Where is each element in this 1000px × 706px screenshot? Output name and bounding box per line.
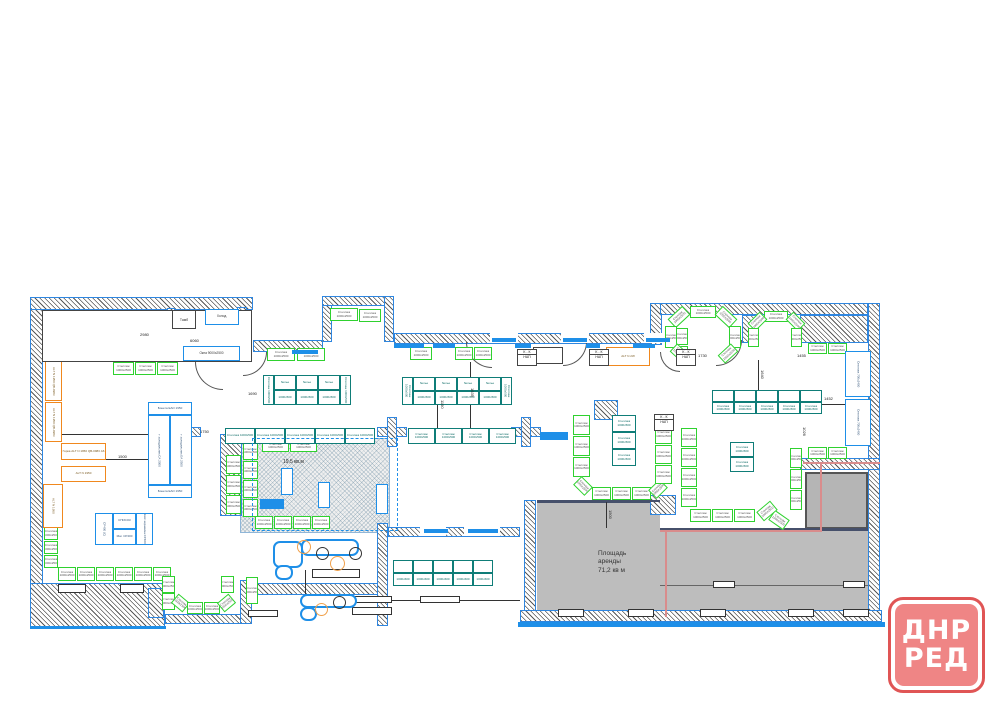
threshold xyxy=(628,609,654,617)
fixture-o: ALT N 1950 xyxy=(61,466,106,482)
threshold xyxy=(788,609,814,617)
fixture-t xyxy=(756,390,778,402)
fixture-t: 1000х500 xyxy=(457,391,479,405)
door-sill xyxy=(424,529,448,533)
door-sill xyxy=(292,350,318,354)
fixture-g: Стеллаж 1000х2500 xyxy=(157,362,178,375)
threshold xyxy=(843,581,865,588)
door-sill xyxy=(515,344,531,348)
fixture-g: Стеллаж 1000х2500 xyxy=(135,362,156,375)
fixture-g: Стеллаж 1000х2500 xyxy=(790,469,802,489)
fixture-o: Горка ALT N 1950 QB-0983 А6 xyxy=(61,443,106,460)
dimension-label: 1635 xyxy=(470,388,474,397)
fixture-t: 1000х600 xyxy=(393,573,413,586)
fixture-g: Стеллаж 1000х2500 xyxy=(96,567,114,581)
door-sill xyxy=(646,338,670,342)
fixture-g: Стеллаж 1000х2500 xyxy=(748,328,759,347)
fixture-t: Стеллаж 1000х500 xyxy=(462,428,489,444)
fixture-t: 1000х600 xyxy=(453,573,473,586)
fixture-b: Бонета ЕАО 1950 xyxy=(148,402,192,415)
fixture-t xyxy=(800,390,822,402)
fixture-g: Стеллаж 1000х2500 xyxy=(115,567,133,581)
rental-line-1: Площадь xyxy=(598,550,626,558)
fixture-t: Стеллаж 1000х500 xyxy=(263,375,274,405)
fixture-t xyxy=(734,390,756,402)
fixture-b: Евіс керамика СР400 xyxy=(136,513,153,545)
fixture-t: 1000х500 xyxy=(413,391,435,405)
scale-circle xyxy=(316,547,329,560)
fixture-t xyxy=(712,390,734,402)
fixture-g: Стеллаж 1000х2500 xyxy=(330,308,358,321)
threshold xyxy=(713,581,735,588)
blue-box: Холод. xyxy=(205,309,239,325)
page: 19,5 кв.м Площадь аренды 71,2 кв м Стелл… xyxy=(0,0,1000,706)
fixture-g: Стеллаж 1000х2500 xyxy=(681,428,697,447)
red-boundary-line xyxy=(820,463,822,530)
dimension-label: 1640 xyxy=(760,370,764,379)
logo-line-1: ДНР xyxy=(902,617,971,645)
fixture-b: Маг. СР400 xyxy=(113,529,136,545)
axis-marker: К - КНАП xyxy=(517,349,537,366)
plain-box xyxy=(533,347,563,364)
dimension-label: 1730 xyxy=(698,354,707,358)
fixture-g: Стеллаж 1000х2500 xyxy=(573,457,590,477)
fixture-t: белье xyxy=(457,377,479,391)
fixture-t: белье xyxy=(435,377,457,391)
fixture-g: Стеллаж 1000х2500 xyxy=(226,495,241,514)
wall-segment xyxy=(650,495,676,515)
fixture-g: Стеллаж 1000х2500 xyxy=(676,328,688,345)
fixture-g: Стеллаж 1000х2500 xyxy=(113,362,134,375)
fixture-t: 1000х500 xyxy=(435,391,457,405)
fixture-g: Стеллаж 1000х2500 xyxy=(77,567,95,581)
fixture-t: Стеллаж 1000х500 xyxy=(612,449,636,466)
dimension-label: 1190 xyxy=(440,400,444,409)
fixture-g: Стеллаж 1000х2500 xyxy=(808,447,827,459)
door-sill xyxy=(586,344,600,348)
fixture-t: Стеллаж 1000х500 xyxy=(402,377,413,405)
dimension-label: 2980 xyxy=(140,333,149,337)
fixture-g: Стеллаж 1000х2500 xyxy=(573,436,590,456)
wall-segment xyxy=(384,296,394,342)
dimension-label: 1026 xyxy=(802,427,806,436)
drawing-line xyxy=(537,500,660,502)
red-boundary-line xyxy=(803,462,880,464)
fixture-t: Стеллаж 1000х500 xyxy=(730,442,754,457)
fixture-o: ALT N 1950 QB-0983 xyxy=(45,361,62,401)
threshold xyxy=(420,596,460,603)
fixture-t: Стеллаж 1000х500 xyxy=(778,402,800,414)
fixture-g: Стеллаж 1000х2500 xyxy=(790,448,802,468)
threshold xyxy=(352,596,392,603)
rental-line-3: 71,2 кв м xyxy=(598,567,626,575)
fixture-g: Стеллаж 1000х2500 xyxy=(226,475,241,494)
fixture-t: Стеллаж 1000х500 xyxy=(712,402,734,414)
fixture-t: 1000х500 xyxy=(318,390,340,405)
fixture-t: белье xyxy=(318,375,340,390)
fixture-t: Стеллаж 1000х500 xyxy=(408,428,435,444)
blue-box: Окна 9000х2500 xyxy=(183,346,240,361)
fixture-g: Стеллаж 1000х2500 xyxy=(474,347,492,360)
fixture-g: Стеллаж 1000х2500 xyxy=(187,602,203,614)
drawing-line xyxy=(62,434,148,435)
fixture-t: белье xyxy=(479,377,501,391)
wall-segment xyxy=(800,315,868,343)
door-sill xyxy=(468,529,498,533)
logo-line-2: РЕД xyxy=(904,645,969,673)
fixture-g: Стеллаж 1000х2500 xyxy=(573,415,590,435)
threshold xyxy=(248,610,278,617)
door-arc xyxy=(195,362,223,390)
logo-inner-plate: ДНР РЕД xyxy=(895,604,978,686)
door-arc xyxy=(563,342,587,366)
door-sill xyxy=(633,344,655,348)
fixture-g: Стеллаж 1000х2500 xyxy=(359,309,381,322)
plain-box: Тамб xyxy=(172,310,196,329)
fixture-b: Стеллаж 700х2400 xyxy=(845,351,871,397)
fixture-b: Стеллаж 700х2400 xyxy=(845,399,871,446)
fixture-t: 1000х500 xyxy=(479,391,501,405)
fixture-t: Стеллаж 1000х500 xyxy=(612,415,636,432)
wall-segment xyxy=(524,500,536,612)
fixture-g: Стеллаж 1000х2500 xyxy=(246,577,258,604)
rental-area xyxy=(660,530,868,617)
fixture-t: 1000х500 xyxy=(296,390,318,405)
fixture-t: белье xyxy=(296,375,318,390)
fixture-t: белье xyxy=(413,377,435,391)
fixture-b: СР400 (С) xyxy=(95,513,113,545)
fixture-t: Стеллаж 1000х500 xyxy=(435,428,462,444)
threshold xyxy=(700,609,726,617)
fixture-g: Стеллаж 1000х2500 xyxy=(410,347,432,360)
fixture-o: ALT N 1950 QB-0983 xyxy=(45,402,62,442)
rental-area-box xyxy=(805,472,868,529)
fixture-g: Стеллаж 1000х2500 xyxy=(162,576,175,593)
dimension-label: 1455 xyxy=(797,354,806,358)
fixture-g: Стеллаж 1000х2500 xyxy=(44,541,58,554)
dimension-label: 1750 xyxy=(200,430,209,434)
dimension-label: 6060 xyxy=(190,339,199,343)
fixture-o: ALT N 1950 xyxy=(43,484,63,528)
rental-line-2: аренды xyxy=(598,558,626,566)
red-boundary-line xyxy=(660,530,822,532)
chair-circle xyxy=(315,603,328,616)
wall-segment xyxy=(30,583,165,628)
fixture-bs xyxy=(540,432,568,440)
door-sill xyxy=(30,626,166,629)
drawing-line xyxy=(660,585,868,586)
wall-segment xyxy=(388,527,520,537)
fixture-g: Стеллаж 1000х2500 xyxy=(226,455,241,474)
axis-marker-bottom: НАП xyxy=(590,354,608,359)
fixture-g: Стеллаж 1000х2500 xyxy=(58,567,76,581)
fixture-t: Стеллаж 1000х500 xyxy=(800,402,822,414)
fixture-t xyxy=(433,560,453,573)
rental-area-label: Площадь аренды 71,2 кв м xyxy=(598,550,626,575)
fixture-g: Стеллаж 1000х2500 xyxy=(221,576,234,593)
axis-marker-bottom: НАП xyxy=(518,354,536,359)
red-boundary-line xyxy=(665,530,667,617)
checkout-counter xyxy=(300,594,357,608)
fixture-g: Стеллаж 1000х2500 xyxy=(573,476,593,496)
fixture-t: Стеллаж 1000х500 xyxy=(734,402,756,414)
wall-segment xyxy=(800,458,880,470)
drawing-line xyxy=(758,360,759,390)
drawing-line xyxy=(820,404,848,405)
door-sill xyxy=(518,622,885,627)
door-sill xyxy=(394,344,424,348)
fixture-g: Стеллаж 1000х2500 xyxy=(267,348,295,361)
axis-marker-bottom: НАП xyxy=(677,354,695,359)
fixture-t xyxy=(413,560,433,573)
fixture-b: + холодильник СА 2000 xyxy=(148,415,170,485)
fixture-t: Стеллаж 1000х500 xyxy=(501,377,512,405)
fixture-t xyxy=(473,560,493,573)
fixture-g: Стеллаж 1000х2500 xyxy=(655,465,672,484)
wall-segment xyxy=(394,333,660,344)
dnr-red-watermark-logo: ДНР РЕД xyxy=(888,597,985,693)
fixture-g: Стеллаж 1000х2500 xyxy=(690,306,716,318)
scale-circle xyxy=(333,596,346,609)
fixture-t: Стеллаж 1000х500 xyxy=(730,457,754,472)
dimension-label: 1500 xyxy=(118,455,127,459)
fixture-g: Стеллаж 1000х2500 xyxy=(455,347,473,360)
fixture-t: 1000х600 xyxy=(473,573,493,586)
checkout-counter xyxy=(275,565,293,580)
threshold xyxy=(58,584,86,593)
fixture-g: Стеллаж 1000х2500 xyxy=(690,509,711,522)
fixture-g: Стеллаж 1000х2500 xyxy=(655,445,672,464)
fixture-g: Стеллаж 1000х2500 xyxy=(681,488,697,507)
dimension-label: 1452 xyxy=(824,397,833,401)
fixture-t: 1000х600 xyxy=(413,573,433,586)
fixture-t: Стеллаж 1000х500 xyxy=(612,432,636,449)
fixture-t xyxy=(778,390,800,402)
fixture-g: Стеллаж 1000х2500 xyxy=(790,490,802,510)
fixture-g: Стеллаж 1000х2500 xyxy=(791,328,802,347)
wall-segment xyxy=(165,614,245,624)
fixture-t: Стеллаж 1000х500 xyxy=(340,375,351,405)
fixture-g: Стеллаж 1000х2500 xyxy=(681,448,697,467)
chair-circle xyxy=(297,540,311,554)
door-sill xyxy=(433,344,455,348)
fixture-g: Стеллаж 1000х2500 xyxy=(764,311,788,322)
threshold xyxy=(352,607,392,615)
chair-circle xyxy=(330,556,345,571)
fixture-t: Стеллаж 1000х500 xyxy=(225,428,255,444)
fixture-g: Стеллаж 1000х2500 xyxy=(712,509,733,522)
fixture-g: Стеллаж 1000х2500 xyxy=(734,509,755,522)
fixture-t: Стеллаж 1000х500 xyxy=(756,402,778,414)
fixture-t: 1000х600 xyxy=(433,573,453,586)
fixture-t: белье xyxy=(274,375,296,390)
fixture-g: Стеллаж 1000х2500 xyxy=(828,447,847,459)
fixture-b: Бонета ЕАО 1950 xyxy=(148,485,192,498)
fixture-g: Стеллаж 1000х2500 xyxy=(592,487,611,500)
column xyxy=(521,417,531,447)
threshold xyxy=(843,609,869,617)
fixture-b: + холодильник ЕА 2500 xyxy=(170,415,192,485)
fixture-t: Стеллаж 1000х500 xyxy=(489,428,516,444)
drawing-line xyxy=(305,570,306,594)
axis-marker: К - КНАП xyxy=(676,349,696,366)
threshold xyxy=(558,609,584,617)
fixture-g: Стеллаж 1000х2500 xyxy=(134,567,152,581)
drawing-line xyxy=(606,502,607,528)
fixture-o: ALT N 2W xyxy=(606,347,650,366)
dashed-boundary xyxy=(252,438,398,531)
door-sill xyxy=(492,338,516,342)
fixture-t xyxy=(453,560,473,573)
floor-plan-canvas: 19,5 кв.м Площадь аренды 71,2 кв м Стелл… xyxy=(0,0,1000,706)
scale-circle xyxy=(349,547,362,560)
threshold xyxy=(120,584,144,593)
fixture-g: Стеллаж 1000х2500 xyxy=(612,487,631,500)
fixture-g: Стеллаж 1000х2500 xyxy=(44,527,58,540)
door-sill xyxy=(563,338,587,342)
fixture-g: Стеллаж 1000х2500 xyxy=(681,468,697,487)
dimension-label: 1500 xyxy=(608,510,612,519)
fixture-g: Стеллаж 1000х2500 xyxy=(44,555,58,568)
axis-marker-bottom: НАП xyxy=(655,419,673,424)
axis-marker: К - КНАП xyxy=(654,414,674,431)
fixture-t xyxy=(393,560,413,573)
fixture-b: СПИСОК xyxy=(113,513,136,529)
axis-marker: К - КНАП xyxy=(589,349,609,366)
dimension-label: 1690 xyxy=(248,392,257,396)
fixture-g: Стеллаж 1000х2500 xyxy=(808,343,827,354)
fixture-t: 1000х500 xyxy=(274,390,296,405)
